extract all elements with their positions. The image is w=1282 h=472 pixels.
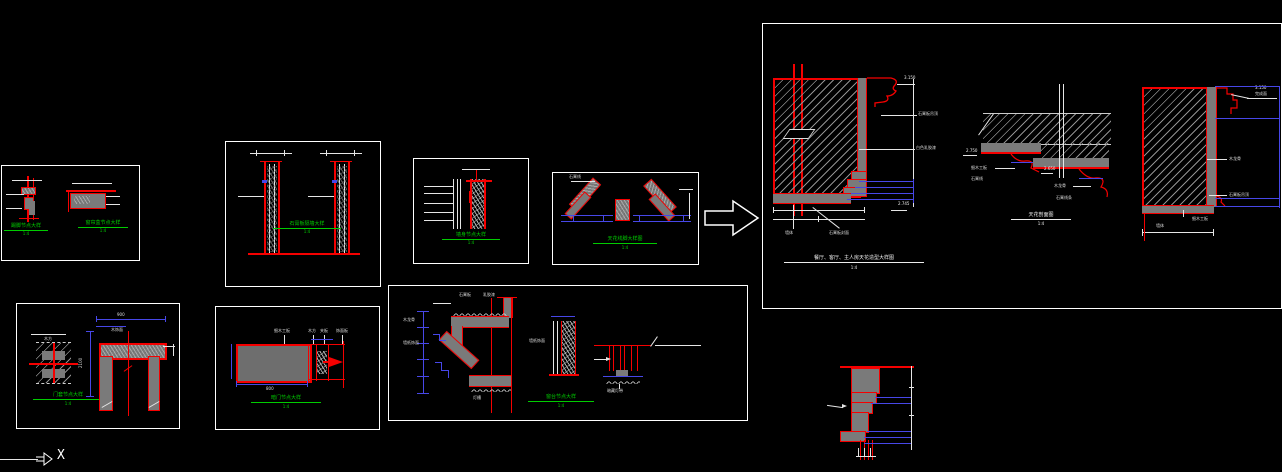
callout-label: 乳胶漆 bbox=[483, 293, 495, 297]
line bbox=[19, 218, 39, 219]
line bbox=[561, 221, 613, 222]
leader-line bbox=[793, 205, 794, 229]
step-mark bbox=[439, 340, 446, 341]
leader-line bbox=[284, 335, 285, 344]
callout-label: 石膏板封面 bbox=[829, 231, 849, 235]
drawing-title: 天花剖面图 bbox=[1011, 212, 1071, 220]
callout-label: 石膏线 bbox=[971, 177, 983, 181]
ucs-x-label: X bbox=[57, 448, 65, 463]
plaster-hatch bbox=[606, 379, 640, 384]
section-fill bbox=[74, 196, 90, 204]
leader-line bbox=[859, 149, 915, 150]
dim-tick bbox=[818, 216, 819, 222]
callout-label: 细木工板 bbox=[1192, 217, 1208, 221]
line bbox=[631, 345, 632, 371]
callout-label: 灯槽 bbox=[473, 396, 481, 400]
callout-label: 细木工板 bbox=[274, 329, 290, 333]
line bbox=[308, 344, 345, 345]
leader-line bbox=[1209, 195, 1227, 196]
drawing-title: 餐厅、客厅、主人房天花造型大样图 bbox=[784, 255, 924, 263]
line bbox=[476, 169, 477, 181]
leader-line bbox=[424, 203, 454, 204]
callout-label: 墙体 bbox=[1156, 224, 1164, 228]
callout-label: 木龙骨 bbox=[403, 318, 415, 322]
line bbox=[278, 161, 280, 254]
leader-arrow bbox=[842, 404, 847, 408]
leader-line bbox=[827, 405, 843, 408]
ceiling-band bbox=[1142, 205, 1214, 214]
dim-line bbox=[1215, 118, 1279, 119]
line bbox=[323, 361, 330, 363]
line bbox=[1144, 213, 1145, 241]
drawing-scale: 1:4 bbox=[14, 232, 38, 236]
dim-line bbox=[603, 376, 643, 377]
section-fill bbox=[29, 201, 35, 215]
dim-tick bbox=[909, 387, 914, 388]
level-value: 2.650 bbox=[1044, 167, 1055, 171]
dim-text: 2100 bbox=[79, 358, 83, 368]
line bbox=[561, 215, 613, 216]
level-tick bbox=[963, 155, 977, 156]
dim-tick bbox=[573, 215, 574, 222]
dim-line bbox=[689, 193, 690, 219]
detail-group-f[interactable]: 木方 门套节点大样 1:4 900 木饰面 2100 bbox=[16, 303, 180, 429]
hatch-fill bbox=[337, 166, 347, 252]
line bbox=[330, 161, 352, 162]
cornice-profile bbox=[1215, 86, 1241, 116]
callout-label: 暗藏灯带 bbox=[607, 389, 623, 393]
line bbox=[68, 190, 69, 212]
dim-tick bbox=[417, 393, 429, 394]
drawing-scale: 1:4 bbox=[56, 402, 80, 406]
leader-line bbox=[424, 193, 454, 194]
callout-label: 石膏线条 bbox=[1056, 196, 1072, 200]
line bbox=[624, 345, 625, 371]
dim-text: 800 bbox=[266, 387, 274, 391]
wall-line bbox=[511, 298, 512, 413]
line bbox=[860, 440, 861, 460]
step-mark bbox=[448, 370, 449, 378]
dim-line bbox=[851, 193, 913, 194]
line bbox=[637, 345, 638, 371]
dim-tick bbox=[417, 327, 429, 328]
dim-tick bbox=[86, 396, 94, 397]
drawing-title: 石膏板隔墙大样 bbox=[273, 221, 341, 229]
leader-line bbox=[1207, 159, 1227, 160]
moulding-profile bbox=[1077, 167, 1113, 201]
drawing-scale: 1:4 bbox=[274, 405, 298, 409]
callout-label: 木饰面 bbox=[111, 328, 123, 332]
moulding-section bbox=[615, 199, 630, 221]
callout-label: 墙纸饰面 bbox=[403, 341, 419, 345]
level-tick bbox=[891, 210, 907, 211]
leader-line bbox=[995, 168, 1015, 169]
dim-line bbox=[90, 331, 91, 397]
line bbox=[308, 379, 345, 380]
leader-line bbox=[6, 208, 22, 209]
step-fill bbox=[851, 368, 880, 394]
leader-line bbox=[424, 212, 454, 213]
leader-line bbox=[238, 196, 264, 197]
ucs-icon: X bbox=[0, 446, 80, 470]
dim-line bbox=[571, 181, 595, 182]
leader-line bbox=[106, 204, 120, 205]
line bbox=[462, 169, 490, 170]
dim-tick bbox=[870, 448, 871, 456]
line bbox=[72, 183, 112, 184]
leader-line bbox=[881, 115, 917, 116]
line bbox=[260, 161, 282, 162]
dim-line bbox=[864, 443, 911, 444]
dim-line bbox=[864, 437, 911, 438]
wall-hatch bbox=[561, 321, 576, 375]
dim-line bbox=[236, 384, 308, 385]
leader-line bbox=[342, 335, 343, 344]
line bbox=[557, 321, 558, 375]
level-tick bbox=[1041, 173, 1053, 174]
dim-line bbox=[867, 431, 911, 432]
dim-tick bbox=[417, 376, 429, 377]
dim-line bbox=[1079, 178, 1103, 179]
dim-line bbox=[231, 344, 232, 379]
dim-line bbox=[1215, 86, 1279, 87]
break-line bbox=[36, 383, 71, 385]
drawing-scale: 1:4 bbox=[91, 229, 115, 233]
drawing-scale: 1:4 bbox=[834, 266, 874, 270]
dim-line bbox=[847, 199, 913, 200]
dim-tick bbox=[284, 150, 285, 156]
detail-group-c[interactable]: 墙身节点大样 1:4 bbox=[413, 158, 529, 264]
level-value: 2.745 bbox=[898, 202, 909, 206]
dim-tick bbox=[326, 150, 327, 156]
detail-group-g[interactable]: 细木工板 木方 夹板 饰面板 800 暗门节点大样 1:4 bbox=[215, 306, 380, 430]
direction-arrow bbox=[329, 357, 343, 367]
dim-tick bbox=[417, 359, 429, 360]
dim-line bbox=[855, 187, 913, 188]
dim-line bbox=[433, 303, 451, 304]
leader-line bbox=[1073, 186, 1091, 187]
center-line bbox=[128, 331, 129, 416]
drawing-scale: 1:4 bbox=[457, 241, 485, 245]
dim-tick bbox=[236, 381, 237, 387]
step-mark bbox=[441, 362, 442, 370]
dim-line bbox=[1011, 162, 1033, 163]
line bbox=[348, 161, 350, 254]
callout-label: 木龙骨 bbox=[1054, 184, 1066, 188]
dim-line bbox=[173, 344, 174, 356]
ucs-arrow-icon bbox=[36, 452, 54, 468]
line bbox=[457, 179, 458, 229]
callout-label: 夹板 bbox=[320, 329, 328, 333]
line bbox=[613, 345, 614, 371]
fixing-block bbox=[332, 180, 337, 183]
drawing-title: 踢脚节点大样 bbox=[4, 223, 48, 231]
line bbox=[466, 180, 492, 182]
dim-tick bbox=[96, 316, 97, 322]
level-value: 2.750 bbox=[966, 149, 977, 153]
line bbox=[469, 191, 471, 203]
ucs-axis-line bbox=[0, 459, 38, 460]
dim-line bbox=[773, 219, 865, 220]
dim-line bbox=[856, 456, 876, 457]
dim-tick bbox=[639, 215, 640, 222]
dim-tick bbox=[417, 311, 429, 312]
dim-tick bbox=[354, 150, 355, 156]
line bbox=[12, 180, 42, 181]
line bbox=[66, 190, 116, 192]
hanger-rod bbox=[1059, 84, 1060, 178]
fixing-block bbox=[262, 180, 267, 183]
drawing-scale: 1:4 bbox=[613, 246, 637, 250]
cornice-profile bbox=[865, 76, 905, 110]
hanger-rod bbox=[1063, 84, 1064, 178]
leader-line bbox=[1183, 210, 1184, 217]
dim-line bbox=[31, 334, 66, 335]
dim-tick bbox=[86, 331, 94, 332]
line bbox=[549, 374, 579, 376]
dim-line bbox=[1215, 206, 1279, 207]
moulding-profile bbox=[1009, 152, 1041, 174]
level-sub-label: 完成面 bbox=[1255, 92, 1267, 96]
callout-label: 石膏线 bbox=[569, 175, 581, 179]
hatch-fill bbox=[267, 166, 277, 252]
leader-line bbox=[106, 196, 120, 197]
line bbox=[53, 343, 55, 383]
model-space-canvas[interactable]: 踢脚节点大样 1:4 窗帘盒节点大样 1:4 石膏板隔墙大 bbox=[0, 0, 1282, 472]
dim-line bbox=[1279, 86, 1280, 208]
dim-tick bbox=[1142, 229, 1143, 236]
drawing-title: 天花线脚大样图 bbox=[593, 236, 657, 244]
pointer-arrow bbox=[703, 196, 761, 240]
detail-group-a[interactable]: 踢脚节点大样 1:4 窗帘盒节点大样 1:4 bbox=[1, 165, 140, 261]
detail-group-e[interactable]: 3.150 石膏板吊顶 白色乳胶漆 2.745 墙体 石膏板封面 餐厅、客厅、主… bbox=[762, 23, 1282, 309]
callout-label: 木方 bbox=[308, 329, 316, 333]
drawing-title: 暗门节点大样 bbox=[251, 395, 321, 403]
dim-line bbox=[911, 366, 912, 450]
slab-hatch bbox=[983, 113, 1111, 145]
drawing-scale: 1:4 bbox=[549, 404, 573, 408]
dim-line bbox=[1142, 232, 1214, 233]
line bbox=[334, 161, 336, 254]
drawing-title: 窗台节点大样 bbox=[528, 394, 594, 402]
dim-line bbox=[679, 189, 693, 190]
slab-hatch bbox=[1041, 143, 1109, 158]
leader-line bbox=[424, 186, 454, 187]
line bbox=[620, 345, 621, 371]
drawing-scale: 1:4 bbox=[288, 230, 326, 234]
line bbox=[264, 161, 266, 254]
detail-group-b[interactable]: 石膏板隔墙大样 1:4 bbox=[225, 141, 381, 287]
dim-text: 900 bbox=[117, 313, 125, 317]
callout-label: 石膏板吊顶 bbox=[1229, 193, 1249, 197]
floor-line bbox=[248, 253, 360, 255]
dim-tick bbox=[165, 316, 166, 322]
detail-skirting-section[interactable] bbox=[820, 360, 950, 472]
base-band bbox=[840, 431, 866, 442]
plaster-hatch bbox=[471, 386, 511, 392]
dim-tick bbox=[1213, 229, 1214, 236]
callout-label: 细木工板 bbox=[971, 166, 987, 170]
dim-line bbox=[913, 179, 914, 203]
dim-line bbox=[871, 403, 911, 404]
panel-section bbox=[236, 344, 312, 383]
dim-tick bbox=[683, 215, 684, 222]
dim-line bbox=[859, 181, 913, 182]
drawing-title: 窗帘盒节点大样 bbox=[78, 220, 128, 228]
line bbox=[343, 341, 344, 388]
callout-label: 墙纸饰面 bbox=[529, 339, 545, 343]
callout-label: 墙体 bbox=[785, 231, 793, 235]
callout-label: 石膏板 bbox=[459, 293, 471, 297]
dim-line bbox=[423, 311, 424, 393]
leader-line bbox=[424, 220, 454, 221]
dim-tick bbox=[858, 448, 859, 456]
leader-arrow bbox=[606, 357, 611, 361]
detail-group-h[interactable]: 木龙骨 墙纸饰面 石膏板 乳胶漆 灯槽 墙纸饰面 暗藏灯带 bbox=[388, 285, 748, 421]
drawing-title: 墙身节点大样 bbox=[442, 232, 500, 240]
dim-tick bbox=[773, 207, 774, 213]
dim-line bbox=[1215, 198, 1279, 199]
leader-line bbox=[619, 384, 620, 389]
leader-line bbox=[308, 196, 334, 197]
line bbox=[460, 179, 461, 229]
dim-line bbox=[551, 316, 575, 317]
wall-hatch bbox=[470, 179, 486, 229]
level-tick bbox=[1247, 98, 1277, 99]
dim-tick bbox=[307, 381, 308, 387]
step-fill bbox=[851, 412, 869, 433]
wall-hatch bbox=[1142, 87, 1208, 211]
drawing-scale: 1:4 bbox=[1029, 222, 1053, 226]
detail-group-d[interactable]: 石膏线 天花线脚大样图 1:4 bbox=[552, 172, 699, 265]
dim-tick bbox=[256, 150, 257, 156]
dim-tick bbox=[603, 215, 604, 222]
dim-line bbox=[311, 339, 333, 340]
callout-label: 饰面板 bbox=[336, 329, 348, 333]
callout-label: 石膏板吊顶 bbox=[918, 112, 938, 116]
dim-line bbox=[96, 319, 166, 320]
line bbox=[308, 344, 309, 381]
ceiling-band bbox=[773, 193, 851, 204]
callout-label: 木方 bbox=[44, 337, 52, 341]
leader-line bbox=[6, 194, 24, 195]
dim-tick bbox=[864, 207, 865, 213]
callout-label: 白色乳胶漆 bbox=[916, 146, 936, 150]
line bbox=[553, 321, 554, 375]
line bbox=[655, 345, 701, 346]
callout-label: 木龙骨 bbox=[1229, 157, 1241, 161]
dim-tick bbox=[864, 448, 865, 456]
dim-tick bbox=[909, 415, 914, 416]
dim-line bbox=[875, 397, 911, 398]
line bbox=[594, 345, 651, 346]
